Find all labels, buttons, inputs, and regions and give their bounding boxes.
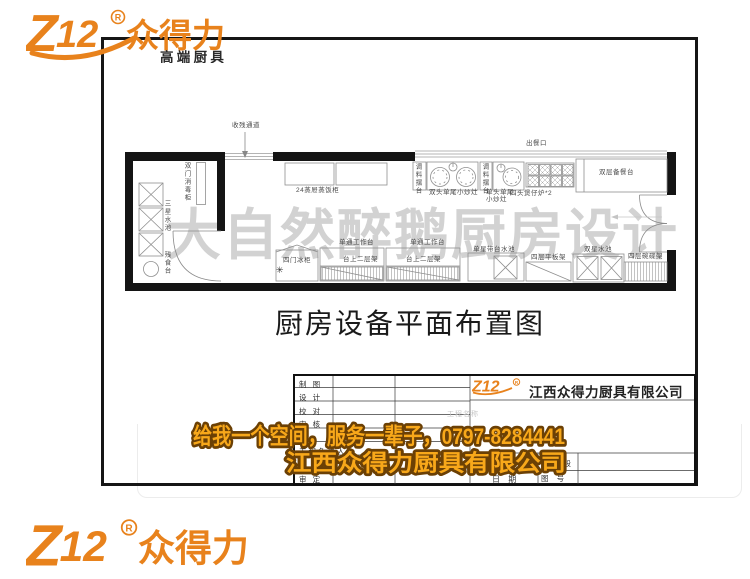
banner-line1: 给我一个空间，服务一辈子，0797-8284441 — [193, 423, 565, 449]
kitchen-plan-screenshot: { "brand": { "logo_text": "Z12", "reg_ma… — [0, 0, 750, 530]
banner-line2: 江西众得力厨具有限公司 — [286, 450, 566, 476]
logo-12-glyph: 12 — [60, 523, 108, 571]
promo-banner: 给我一个空间，服务一辈子，0797-8284441 江西众得力厨具有限公司 — [0, 0, 750, 530]
brand-name: 众得力 — [138, 528, 249, 569]
